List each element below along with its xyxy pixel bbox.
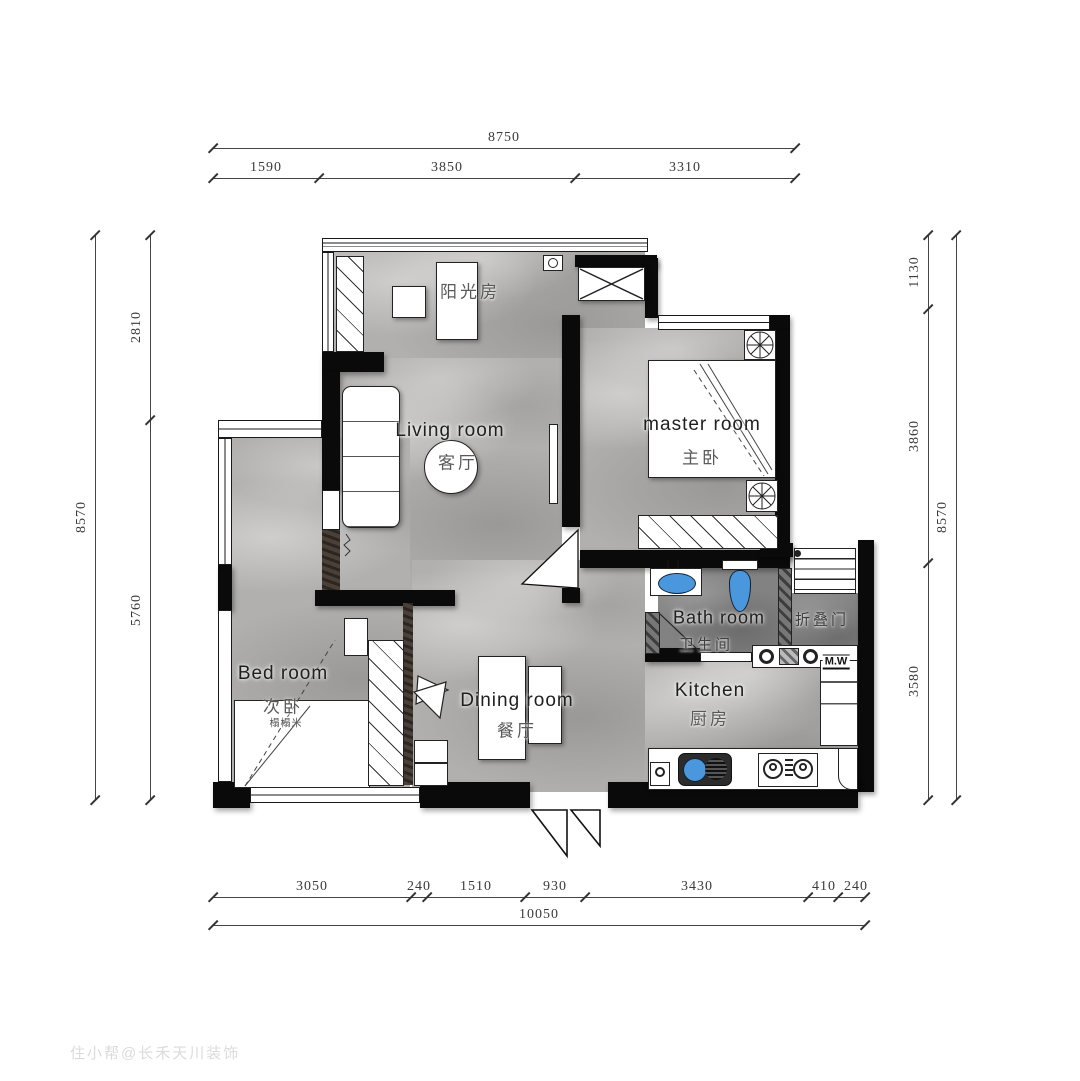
sofa [342, 386, 400, 528]
floor-plan-canvas: 8750 1590 3850 3310 8570 2810 5760 1130 … [0, 0, 1080, 1081]
dim-top-seg3: 3310 [669, 160, 701, 176]
burner-inner [799, 763, 807, 771]
dim-right-seg2: 3860 [907, 420, 923, 452]
bath-sink-basin [658, 573, 696, 594]
entry-door-icon [532, 810, 600, 856]
room-label-master-cn: 主卧 [682, 444, 722, 469]
dim-bottom-seg6: 410 [812, 879, 836, 895]
window-sunroom-left [322, 252, 334, 352]
burner-icon [793, 759, 813, 779]
window-sunroom-top [322, 238, 648, 252]
wall-sliding-track [403, 603, 413, 785]
label-tatami: 榻榻米 [270, 715, 303, 730]
dim-line-right-segments [928, 235, 929, 800]
hob-hatch [779, 648, 799, 665]
room-label-sunroom: 阳光房 [440, 278, 500, 303]
dim-bottom-seg5: 3430 [681, 879, 713, 895]
bath-door-threshold [645, 612, 660, 654]
door-opening [322, 490, 340, 530]
room-label-living-en: Living room [395, 420, 504, 442]
ceiling-symbol [543, 255, 563, 271]
wall-hatched [778, 568, 792, 654]
dim-line-right-total [956, 235, 957, 800]
dim-right-total: 8570 [935, 501, 951, 533]
window-bedroom-top [218, 420, 322, 438]
gas-stove [758, 753, 818, 787]
bath-sink-counter [650, 568, 702, 596]
burner-inner [769, 763, 777, 771]
nightstand [744, 330, 776, 360]
tv [549, 424, 558, 504]
room-label-master-en: master room [643, 414, 761, 436]
dim-bottom-total: 10050 [519, 907, 559, 923]
window-master-top [658, 315, 770, 330]
wall [315, 590, 455, 606]
desk-bedroom [344, 618, 368, 656]
rack-pivot-dot [794, 550, 801, 557]
wall [770, 315, 790, 330]
watermark: 住小帮@长禾天川装饰 [70, 1042, 240, 1063]
dim-line-top-segments [213, 178, 795, 179]
chair-sunroom [392, 286, 426, 318]
drying-rack [794, 548, 856, 594]
dryer-icon [803, 649, 818, 664]
duct-shaft [578, 267, 645, 301]
room-label-bath-en: Bath room [673, 608, 765, 629]
nightstand [746, 480, 778, 512]
cabinet-sunroom [336, 256, 364, 352]
dim-line-left-segments [150, 235, 151, 800]
dim-line-left-total [95, 235, 96, 800]
wall [645, 258, 658, 318]
room-label-kitchen-en: Kitchen [675, 680, 745, 702]
wall [562, 588, 580, 603]
label-microwave: M.W [823, 655, 850, 670]
corner-counter [838, 748, 858, 790]
wardrobe-master [638, 515, 778, 549]
window-bedroom-left [218, 438, 232, 565]
room-label-dining-cn: 餐厅 [497, 717, 537, 742]
room-label-kitchen-cn: 厨房 [690, 705, 730, 730]
wall-thin-left [218, 610, 232, 782]
dim-top-seg1: 1590 [250, 160, 282, 176]
wall [322, 352, 384, 372]
drain-circle [655, 767, 665, 777]
dim-top-seg2: 3850 [431, 160, 463, 176]
dim-left-seg1: 2810 [129, 311, 145, 343]
dim-right-seg3: 3580 [907, 665, 923, 697]
room-label-bath-cn: 卫生间 [679, 634, 733, 655]
dim-bottom-seg7: 240 [844, 879, 868, 895]
wardrobe-bedroom [368, 640, 404, 786]
fridge-cabinet [820, 660, 858, 746]
dim-line-top-total [213, 148, 795, 149]
dim-top-total: 8750 [488, 130, 520, 146]
wall [218, 565, 232, 610]
wall-dark-finish [322, 530, 340, 592]
room-label-living-cn: 客厅 [438, 449, 478, 474]
wall [580, 550, 790, 568]
dim-bottom-seg3: 1510 [460, 879, 492, 895]
wall [322, 372, 340, 490]
cabinet-entry [414, 740, 448, 786]
kitchen-sink-basin [683, 758, 707, 782]
window-bottom [250, 787, 420, 803]
burner-icon [763, 759, 783, 779]
dim-line-bottom-segments [213, 897, 865, 898]
drain-box [650, 762, 670, 786]
wall [858, 540, 874, 792]
room-label-dining-en: Dining room [460, 690, 573, 712]
dim-bottom-seg2: 240 [407, 879, 431, 895]
dim-left-total: 8570 [74, 501, 90, 533]
kitchen-sink [678, 753, 732, 786]
toilet-tank [722, 560, 758, 570]
wall [562, 315, 580, 527]
label-folding-door: 折叠门 [795, 609, 849, 630]
dim-left-seg2: 5760 [129, 594, 145, 626]
room-label-bedroom-en: Bed room [238, 663, 328, 685]
kitchen-drainer [705, 758, 727, 780]
dim-bottom-seg4: 930 [543, 879, 567, 895]
washer-icon [759, 649, 774, 664]
ceiling-symbol-circle [548, 258, 558, 268]
dim-line-bottom-total [213, 925, 865, 926]
dim-bottom-seg1: 3050 [296, 879, 328, 895]
stove-grill [785, 759, 793, 779]
dim-right-seg1: 1130 [907, 256, 923, 287]
